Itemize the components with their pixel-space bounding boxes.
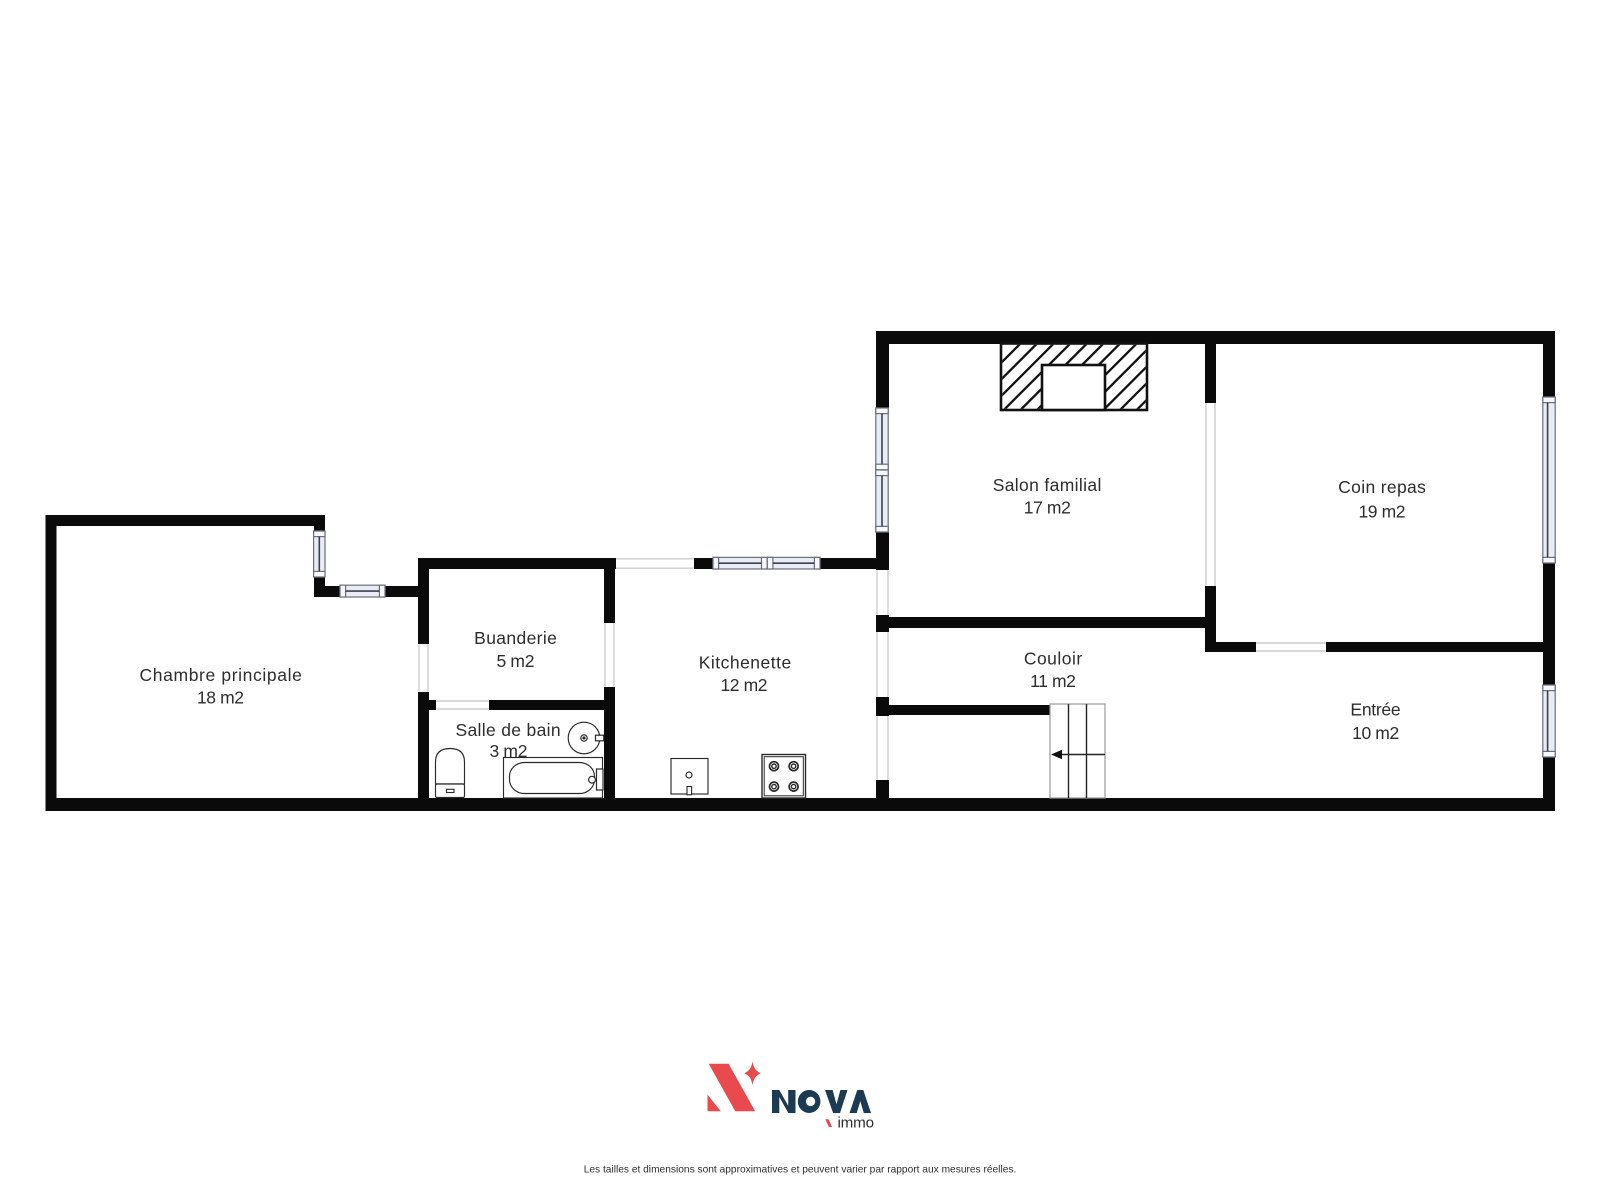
svg-text:3 m2: 3 m2 <box>489 741 527 761</box>
svg-text:Kitchenette: Kitchenette <box>699 652 792 672</box>
svg-text:Entrée: Entrée <box>1350 700 1400 720</box>
svg-text:10 m2: 10 m2 <box>1352 723 1399 743</box>
svg-text:11 m2: 11 m2 <box>1030 671 1075 691</box>
svg-text:Salon familial: Salon familial <box>993 475 1102 495</box>
svg-text:Coin repas: Coin repas <box>1338 477 1426 497</box>
svg-text:12 m2: 12 m2 <box>720 675 767 695</box>
svg-text:5 m2: 5 m2 <box>496 651 534 671</box>
svg-text:Les tailles et dimensions sont: Les tailles et dimensions sont approxima… <box>584 1165 1017 1176</box>
svg-text:Salle de bain: Salle de bain <box>455 720 560 740</box>
svg-text:17 m2: 17 m2 <box>1024 497 1071 517</box>
svg-text:Chambre principale: Chambre principale <box>140 665 303 685</box>
svg-text:19 m2: 19 m2 <box>1358 501 1405 521</box>
svg-text:Buanderie: Buanderie <box>474 628 557 648</box>
svg-text:18 m2: 18 m2 <box>197 687 244 707</box>
svg-text:Couloir: Couloir <box>1024 648 1083 668</box>
svg-text:immo: immo <box>838 1115 874 1132</box>
